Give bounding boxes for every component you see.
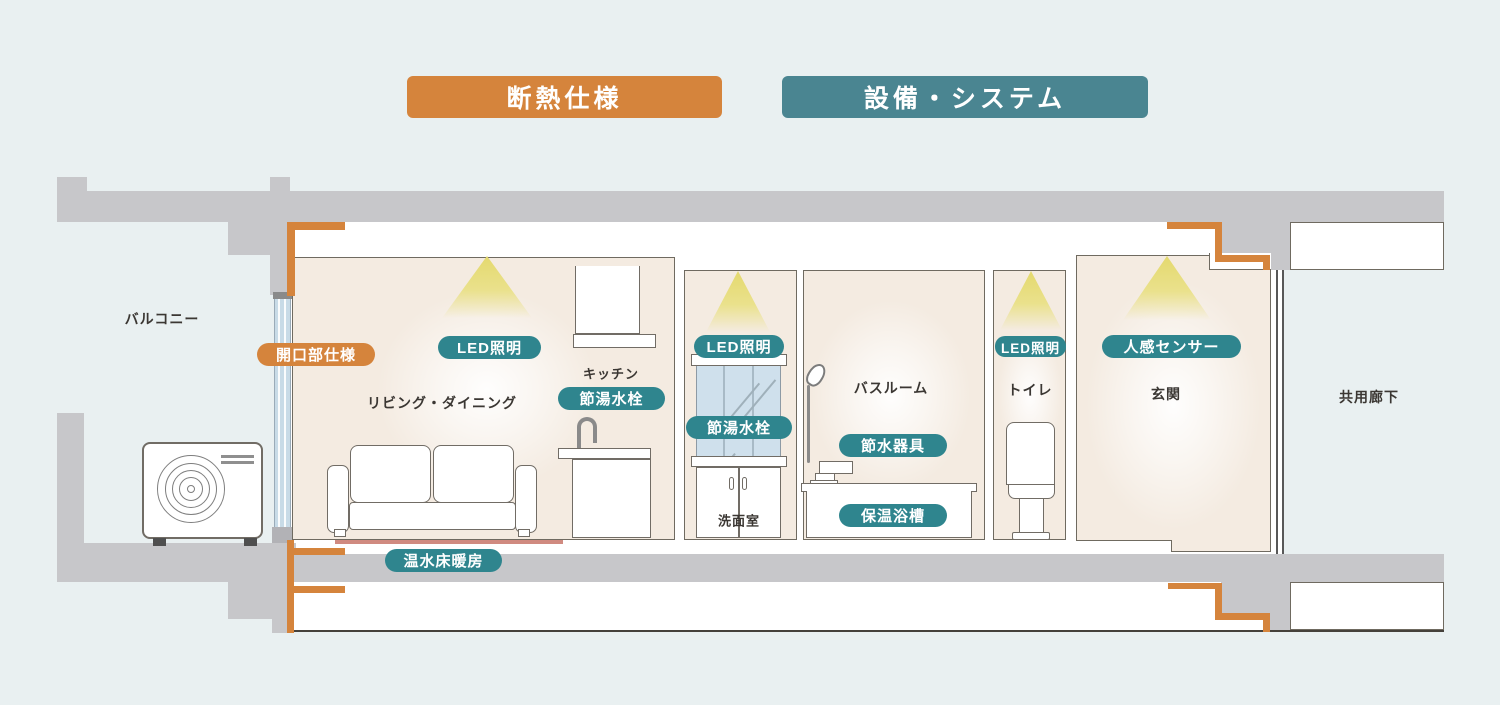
ac-foot-right (244, 538, 257, 546)
badge-water-saving-fixture: 節水器具 (839, 434, 947, 457)
insulation-bottom-right-arm2 (1215, 613, 1270, 620)
label-kitchen: キッチン (583, 364, 639, 383)
vanity-counter (691, 456, 787, 467)
badge-opening-spec: 開口部仕様 (257, 343, 375, 366)
badge-led-washroom: LED照明 (694, 335, 784, 358)
vanity-handle-left (729, 477, 734, 490)
label-living-dining: リビング・ダイニング (367, 393, 517, 413)
insulation-top-right-arm2 (1215, 255, 1270, 262)
door-column-top (1270, 222, 1290, 270)
corridor-ceiling-box (1290, 222, 1444, 270)
toilet-base (1012, 532, 1050, 540)
insulation-top-right-arm1 (1167, 222, 1222, 229)
badge-led-toilet: LED照明 (995, 336, 1066, 357)
toilet-pedestal (1019, 498, 1044, 534)
balcony-floor-slab (57, 543, 296, 582)
top-slab (57, 191, 1444, 222)
range-hood (575, 266, 640, 334)
shower-hose (807, 385, 810, 463)
badge-water-saving-faucet-washroom: 節湯水栓 (686, 416, 792, 439)
sofa-foot-right (518, 529, 530, 537)
vanity-mirror-divider-2 (752, 366, 754, 456)
label-toilet: トイレ (1008, 380, 1053, 400)
window-mullion-1 (278, 299, 280, 528)
sofa-seat (349, 502, 516, 530)
kitchen-counter-top (558, 448, 651, 459)
label-balcony: バルコニー (125, 309, 200, 329)
kitchen-faucet-arc (577, 417, 597, 431)
insulation-top-left-vertical (287, 222, 295, 296)
top-column-cap (270, 177, 290, 192)
ac-vent-line-1 (221, 455, 254, 458)
label-entrance: 玄関 (1151, 384, 1181, 404)
apartment-cross-section-diagram: 断熱仕様 設備・システム (0, 0, 1500, 705)
sofa-armrest-right (515, 465, 537, 533)
range-hood-flange (573, 334, 656, 348)
badge-floor-heating: 温水床暖房 (385, 549, 502, 572)
insulation-bottom-right-end (1263, 613, 1270, 632)
label-bathroom: バスルーム (854, 378, 929, 398)
kitchen-faucet-spout (593, 431, 597, 443)
label-shared-corridor: 共用廊下 (1339, 387, 1399, 407)
ac-vent-line-2 (221, 461, 254, 464)
badge-motion-sensor: 人感センサー (1102, 335, 1241, 358)
vanity-handle-right (742, 477, 747, 490)
lower-floor-ceiling-line (288, 630, 1444, 632)
insulation-bottom-left-arm-lower (287, 586, 345, 593)
entrance-door (1276, 270, 1284, 554)
door-column-bottom (1270, 582, 1290, 630)
vanity-mirror-glass (696, 366, 781, 456)
insulation-top-left-horizontal (287, 222, 345, 230)
top-beam-block (228, 222, 272, 255)
bottom-entrance-beam (1221, 582, 1270, 615)
sofa-foot-left (334, 529, 346, 537)
legend-insulation: 断熱仕様 (407, 76, 722, 118)
sofa-back-cushion-right (433, 445, 514, 503)
toilet-seat (1008, 484, 1055, 499)
entrance-beam-block (1222, 222, 1270, 255)
kitchen-cabinet (572, 459, 651, 538)
insulation-bottom-right-arm1 (1168, 583, 1221, 589)
window-glass (274, 299, 291, 528)
balcony-parapet-wall (57, 413, 84, 582)
badge-led-living: LED照明 (438, 336, 541, 359)
sofa-back-cushion-left (350, 445, 431, 503)
toilet-tank (1006, 422, 1055, 485)
vanity-mirror-divider-1 (723, 366, 725, 456)
insulation-top-right-end (1263, 255, 1270, 270)
corridor-floor-box (1290, 582, 1444, 630)
top-slab-parapet (57, 177, 87, 192)
entrance-step (1076, 540, 1172, 552)
ac-fan-hub (187, 485, 195, 493)
sofa-armrest-left (327, 465, 349, 533)
label-washroom: 洗面室 (718, 511, 760, 530)
window-mullion-2 (284, 299, 286, 528)
bottom-beam-block (228, 582, 272, 619)
legend-equipment: 設備・システム (782, 76, 1148, 118)
ac-foot-left (153, 538, 166, 546)
badge-insulated-bathtub: 保温浴槽 (839, 504, 947, 527)
badge-water-saving-faucet-kitchen: 節湯水栓 (558, 387, 665, 410)
insulation-bottom-left-arm-upper (287, 548, 345, 555)
lower-floor-space (288, 582, 1271, 630)
